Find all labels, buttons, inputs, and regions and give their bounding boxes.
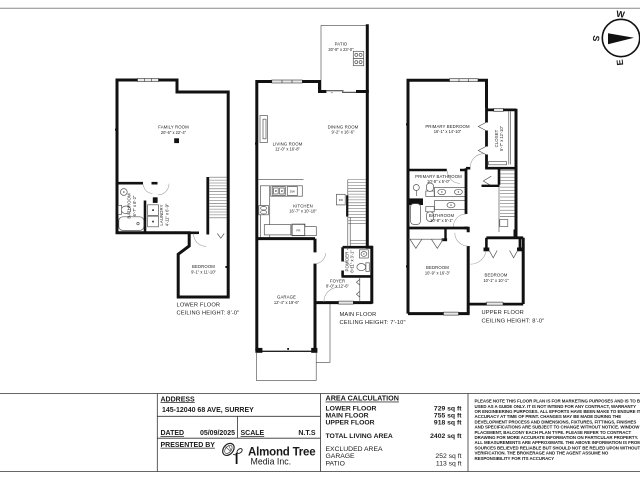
svg-text:252 sq ft: 252 sq ft xyxy=(435,453,461,460)
svg-text:2402 sq ft: 2402 sq ft xyxy=(430,433,462,440)
svg-text:12'-4" x 19'-6": 12'-4" x 19'-6" xyxy=(274,300,300,305)
svg-text:MAIN FLOOR: MAIN FLOOR xyxy=(326,413,369,420)
svg-text:PRESENTED BY: PRESENTED BY xyxy=(161,442,216,449)
svg-text:CEILING HEIGHT: 7'-10": CEILING HEIGHT: 7'-10" xyxy=(340,320,406,326)
svg-text:DW: DW xyxy=(290,189,295,193)
svg-text:4'-11" x 6'-9": 4'-11" x 6'-9" xyxy=(165,203,170,226)
svg-text:9'-1" x 11'-10": 9'-1" x 11'-10" xyxy=(191,269,216,274)
svg-text:FAMILY ROOM: FAMILY ROOM xyxy=(158,125,189,130)
svg-text:EXCLUDED AREA: EXCLUDED AREA xyxy=(326,446,384,453)
svg-text:UPPER FLOOR: UPPER FLOOR xyxy=(482,310,524,316)
svg-text:BEDROOM: BEDROOM xyxy=(485,273,508,278)
svg-text:MAIN FLOOR: MAIN FLOOR xyxy=(340,312,377,318)
svg-text:145-12040 68 AVE, SURREY: 145-12040 68 AVE, SURREY xyxy=(162,407,254,414)
svg-text:GARAGE: GARAGE xyxy=(277,295,296,300)
svg-text:20'-8" x 23'-0": 20'-8" x 23'-0" xyxy=(328,47,354,52)
svg-text:755 sq ft: 755 sq ft xyxy=(434,413,462,420)
svg-text:BEDROOM: BEDROOM xyxy=(192,264,215,269)
svg-text:DATED: DATED xyxy=(161,430,185,437)
svg-text:RESPONSIBILITY FOR ITS ACCURAC: RESPONSIBILITY FOR ITS ACCURACY xyxy=(475,456,555,461)
svg-text:6'-7" x 8'-2": 6'-7" x 8'-2" xyxy=(132,195,137,216)
svg-text:05/09/2025: 05/09/2025 xyxy=(200,430,235,437)
svg-text:11'-0" x 16'-8": 11'-0" x 16'-8" xyxy=(275,147,300,152)
svg-text:FOYER: FOYER xyxy=(330,278,345,283)
svg-text:PATIO: PATIO xyxy=(335,42,348,47)
svg-text:BEDROOM: BEDROOM xyxy=(426,265,449,270)
svg-text:10'-9" x 16'-3": 10'-9" x 16'-3" xyxy=(425,270,451,275)
svg-text:LOWER FLOOR: LOWER FLOOR xyxy=(326,405,377,412)
svg-text:6'-11" x 3'-1": 6'-11" x 3'-1" xyxy=(349,250,354,273)
svg-text:DINING ROOM: DINING ROOM xyxy=(328,124,359,129)
svg-text:CEILING HEIGHT: 8'-0": CEILING HEIGHT: 8'-0" xyxy=(482,318,545,324)
svg-text:9'-2" x 16'-6": 9'-2" x 16'-6" xyxy=(332,130,355,135)
svg-text:729 sq ft: 729 sq ft xyxy=(434,405,462,412)
svg-text:5'-7" x 12'-10": 5'-7" x 12'-10" xyxy=(499,125,504,151)
svg-text:113 sq ft: 113 sq ft xyxy=(436,460,462,467)
svg-text:UPPER FLOOR: UPPER FLOOR xyxy=(326,420,375,427)
svg-text:Media Inc.: Media Inc. xyxy=(251,457,292,467)
svg-text:AREA CALCULATION: AREA CALCULATION xyxy=(326,394,399,403)
svg-text:918 sq ft: 918 sq ft xyxy=(434,420,462,427)
svg-text:CEILING HEIGHT: 8'-0": CEILING HEIGHT: 8'-0" xyxy=(177,311,240,317)
svg-text:10'-8" x 5'-1": 10'-8" x 5'-1" xyxy=(430,218,453,223)
svg-text:8'-0" x 12'-6": 8'-0" x 12'-6" xyxy=(326,284,349,289)
svg-text:S: S xyxy=(591,35,602,42)
svg-text:LAUNDRY: LAUNDRY xyxy=(159,204,164,225)
svg-text:PATIO: PATIO xyxy=(326,460,345,467)
svg-text:BATHROOM: BATHROOM xyxy=(127,193,132,219)
svg-text:SCALE: SCALE xyxy=(241,430,265,437)
svg-text:PRIMARY BEDROOM: PRIMARY BEDROOM xyxy=(425,124,470,129)
svg-text:E: E xyxy=(615,59,626,66)
svg-text:LIVING ROOM: LIVING ROOM xyxy=(273,141,303,146)
svg-text:16'-1" x 14'-10": 16'-1" x 14'-10" xyxy=(434,129,462,134)
svg-text:10'-1" x 10'-1": 10'-1" x 10'-1" xyxy=(483,278,509,283)
svg-text:LOWER FLOOR: LOWER FLOOR xyxy=(177,303,221,309)
svg-text:N.T.S: N.T.S xyxy=(298,430,315,437)
svg-text:16'-7" x 10'-10": 16'-7" x 10'-10" xyxy=(289,209,317,214)
svg-text:20'-6" x 22'-4": 20'-6" x 22'-4" xyxy=(161,130,187,135)
svg-text:ADDRESS: ADDRESS xyxy=(161,396,196,403)
svg-text:TOTAL LIVING AREA: TOTAL LIVING AREA xyxy=(326,433,393,440)
svg-text:KITCHEN: KITCHEN xyxy=(293,203,313,208)
svg-text:GARAGE: GARAGE xyxy=(326,453,356,460)
